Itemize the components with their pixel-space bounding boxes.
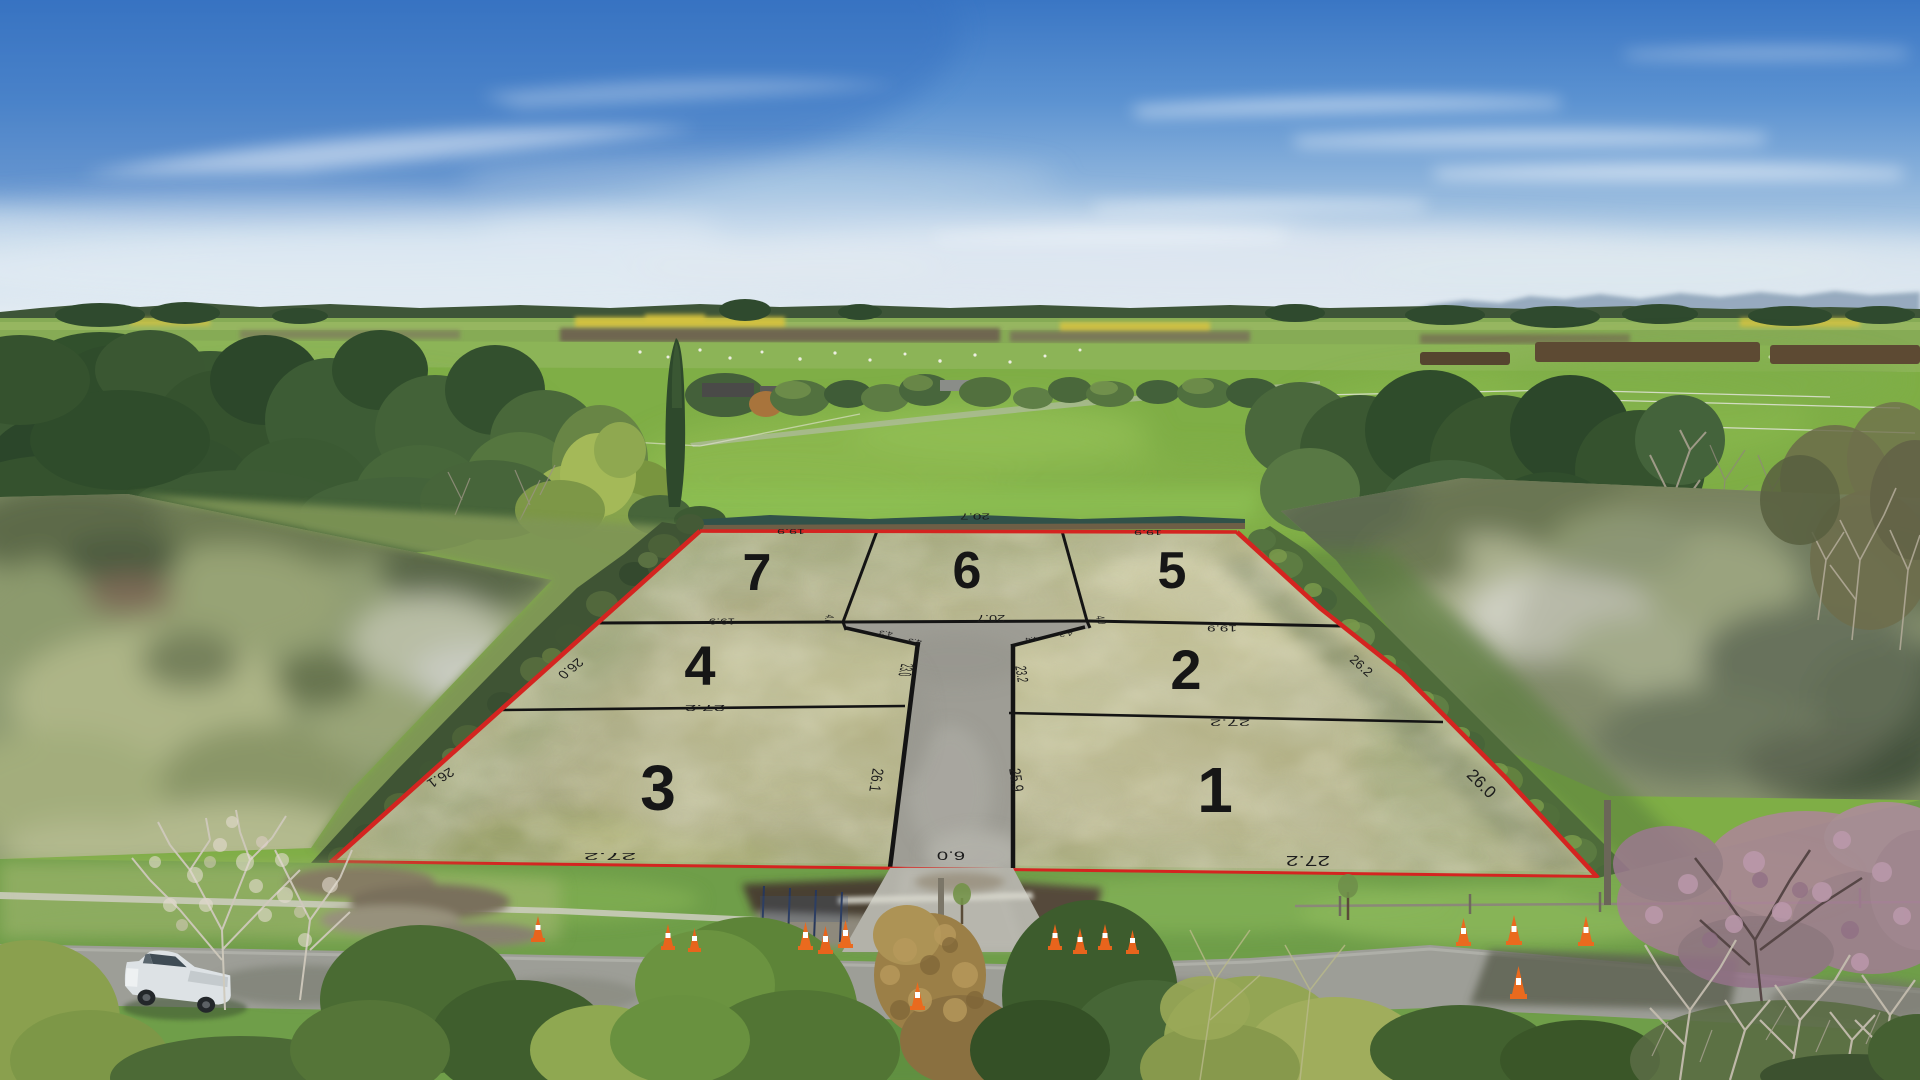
- svg-text:6: 6: [953, 542, 982, 600]
- svg-text:2: 2: [1170, 638, 1201, 701]
- svg-text:23.2: 23.2: [1012, 665, 1032, 682]
- svg-text:27.2: 27.2: [1286, 852, 1330, 869]
- svg-text:4: 4: [684, 634, 715, 697]
- svg-text:19.9: 19.9: [709, 616, 736, 625]
- svg-text:20.7: 20.7: [960, 512, 990, 521]
- svg-text:3: 3: [640, 752, 676, 824]
- svg-text:27.2: 27.2: [584, 851, 637, 862]
- svg-text:19.9: 19.9: [777, 527, 805, 535]
- svg-text:27.2: 27.2: [685, 703, 725, 712]
- svg-text:6.0: 6.0: [937, 849, 965, 863]
- svg-text:4.0: 4.0: [1092, 615, 1109, 624]
- svg-text:20.7: 20.7: [977, 613, 1006, 624]
- svg-text:7: 7: [743, 544, 772, 602]
- svg-text:25.9: 25.9: [1006, 767, 1028, 792]
- svg-text:4.0: 4.0: [820, 614, 837, 623]
- svg-text:27.2: 27.2: [1210, 717, 1250, 728]
- svg-text:19.9: 19.9: [1134, 528, 1162, 536]
- svg-text:19.9: 19.9: [1207, 624, 1237, 633]
- svg-text:23.0: 23.0: [894, 664, 917, 677]
- svg-text:1: 1: [1197, 754, 1233, 826]
- svg-text:5: 5: [1158, 542, 1187, 600]
- svg-text:26.1: 26.1: [866, 768, 888, 793]
